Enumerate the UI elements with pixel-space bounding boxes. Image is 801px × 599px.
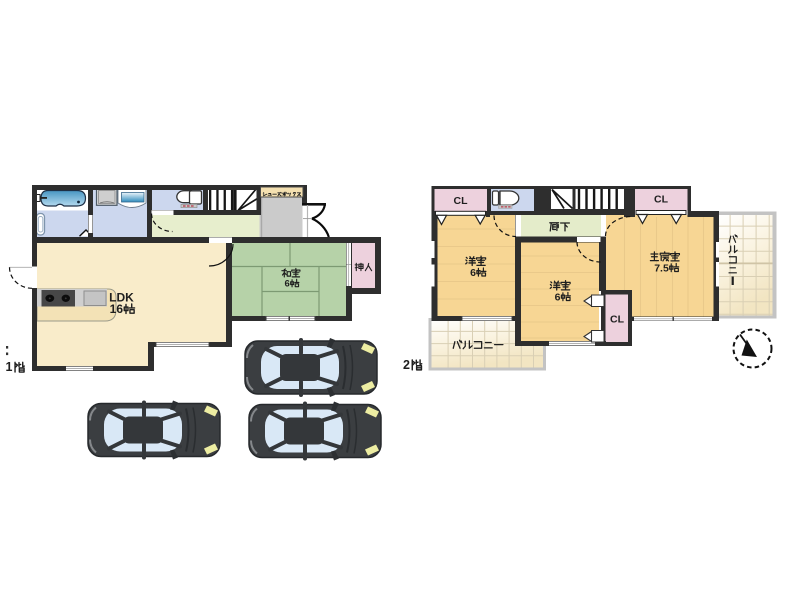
svg-text:CL: CL <box>654 194 669 206</box>
svg-text:1: 1 <box>6 360 13 374</box>
svg-text:2: 2 <box>403 358 410 372</box>
svg-text:7.5: 7.5 <box>654 262 669 274</box>
svg-text:6: 6 <box>470 267 476 279</box>
svg-text:16: 16 <box>110 302 124 316</box>
svg-text:6: 6 <box>285 279 290 290</box>
svg-text:CL: CL <box>454 195 469 207</box>
svg-text:CL: CL <box>610 314 625 326</box>
svg-text:6: 6 <box>555 291 561 303</box>
